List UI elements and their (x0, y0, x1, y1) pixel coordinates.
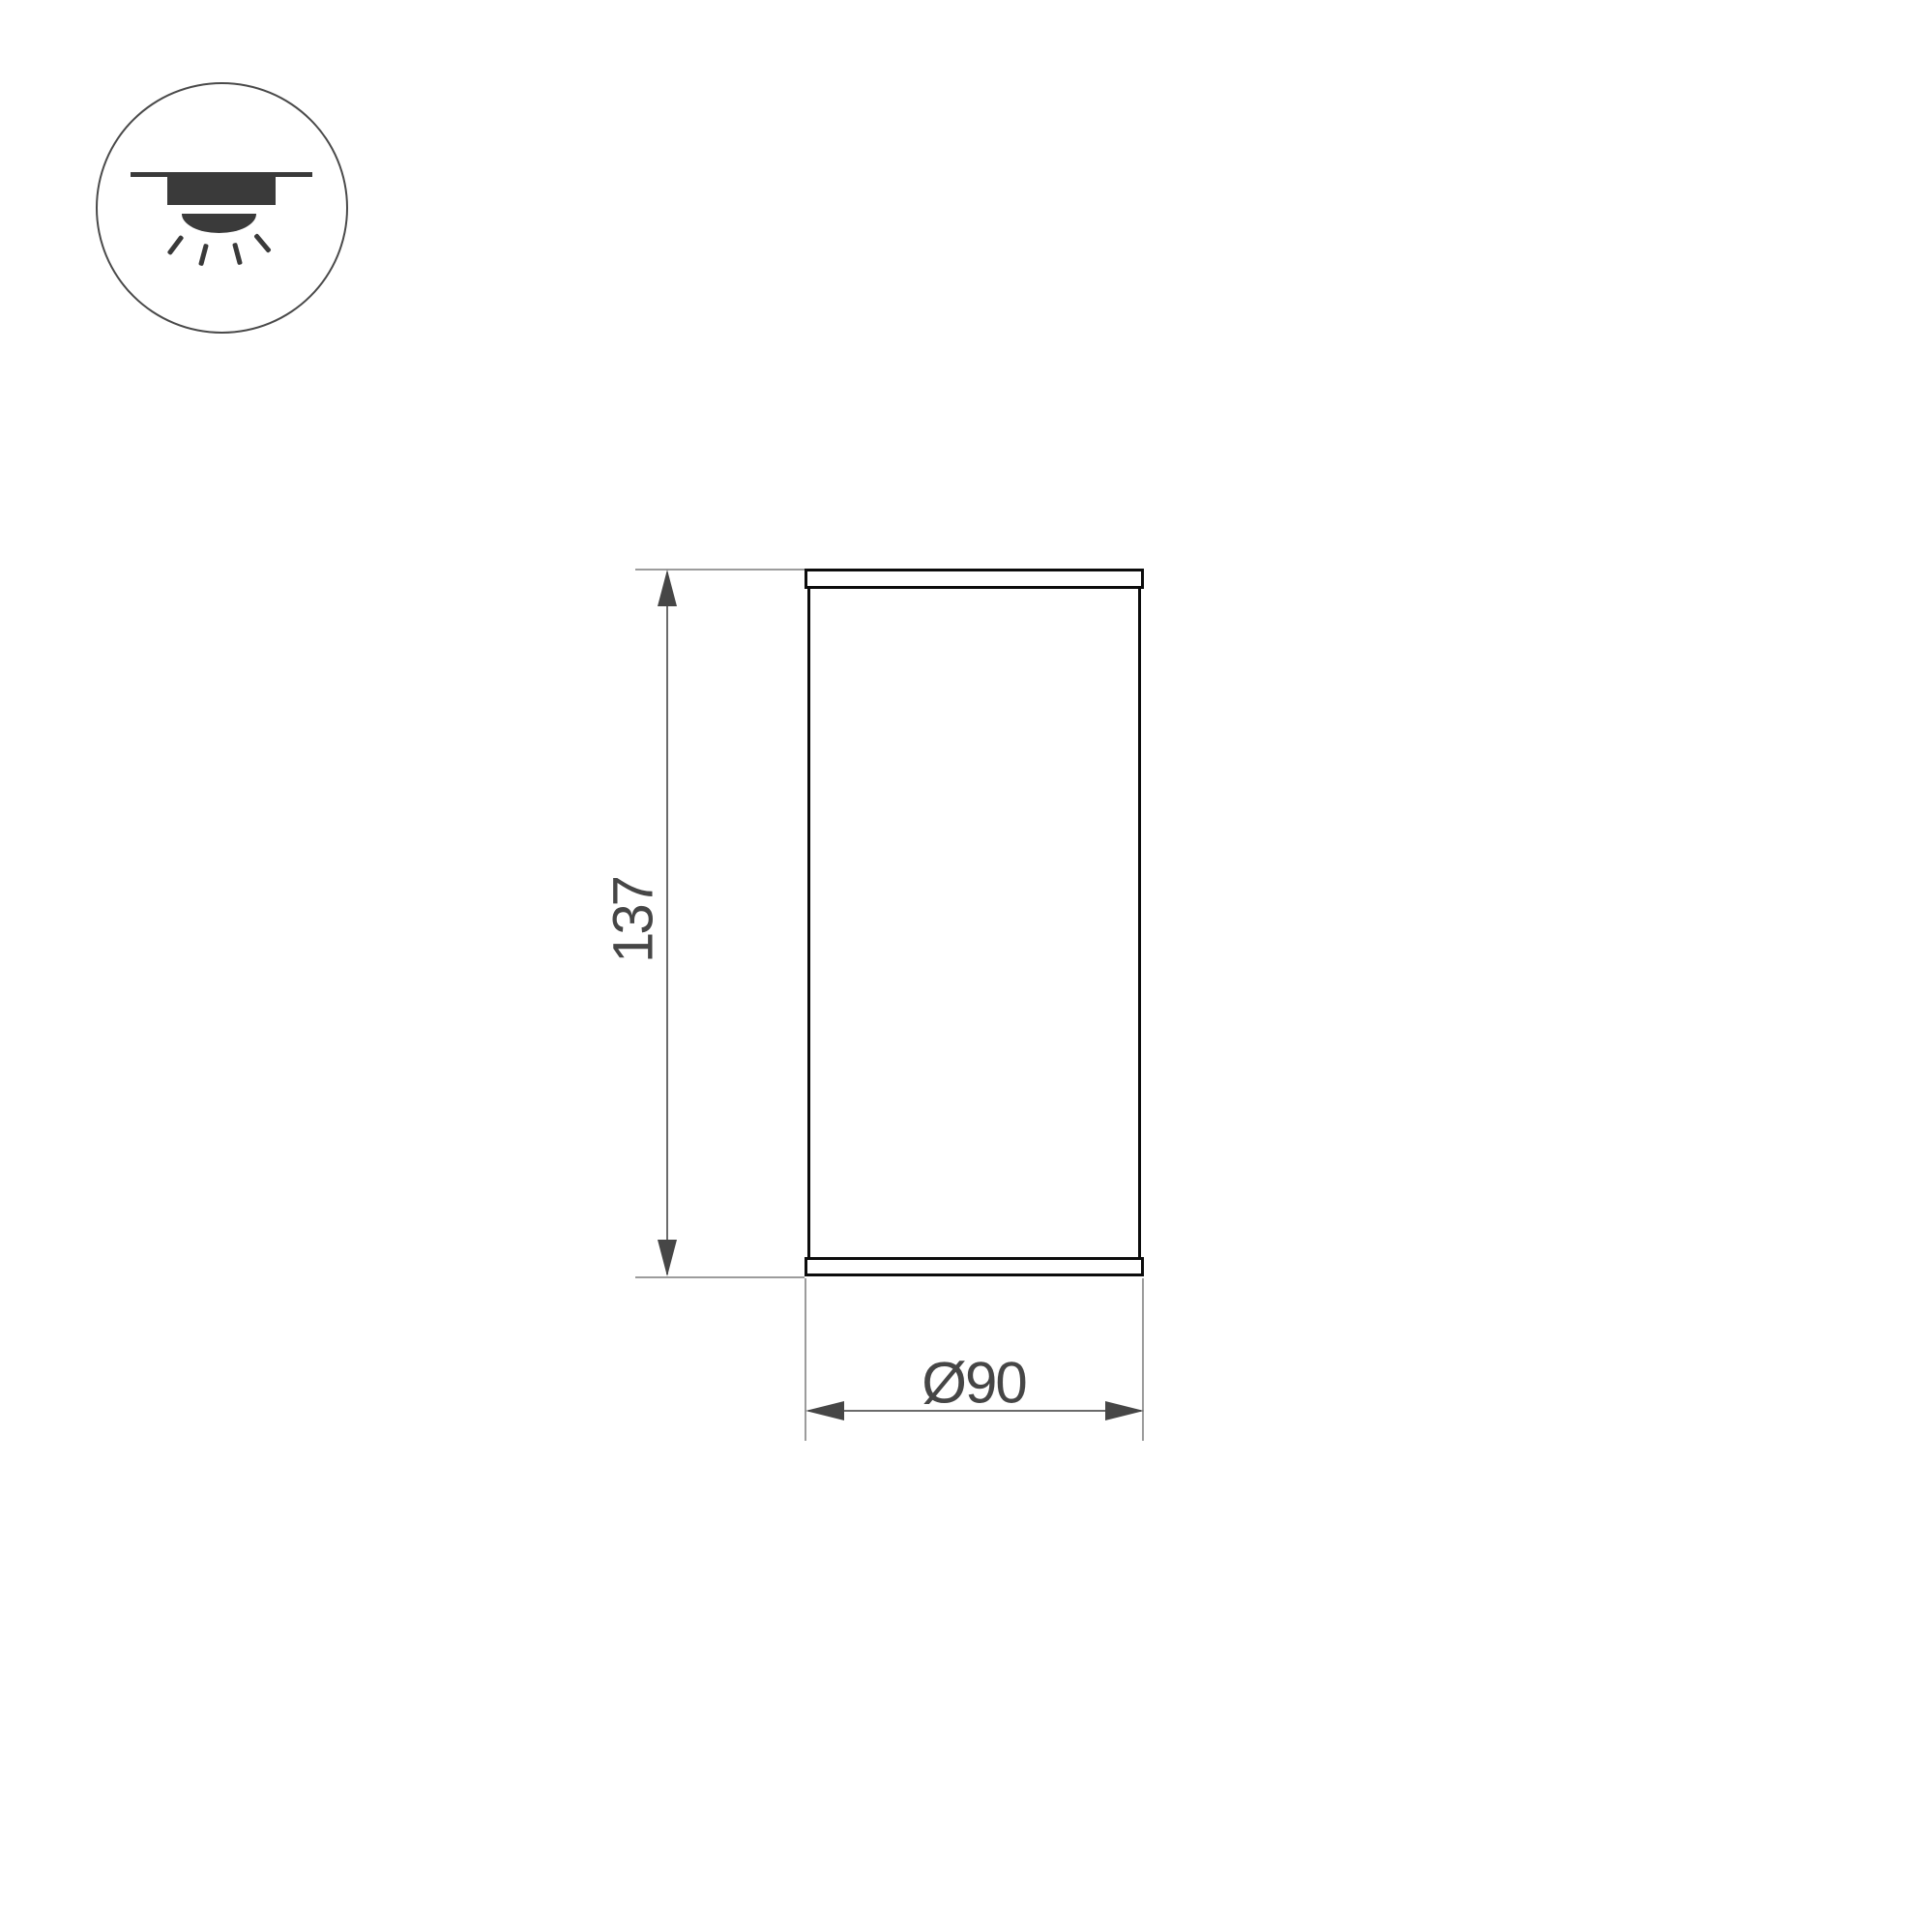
arrowhead-up-icon (658, 570, 677, 606)
arrowhead-down-icon (658, 1240, 677, 1276)
technical-drawing-canvas: 137 Ø90 (0, 0, 1932, 1932)
fixture-housing-icon (167, 175, 276, 205)
lamp-bottom-flange (805, 1257, 1144, 1276)
height-dimension-label: 137 (601, 878, 666, 963)
lamp-body (807, 589, 1141, 1257)
arrowhead-right-icon (1105, 1401, 1144, 1420)
surface-mount-downlight-icon (96, 82, 348, 334)
lamp-top-flange (805, 569, 1144, 589)
arrowhead-left-icon (805, 1401, 844, 1420)
extension-line-bottom (635, 1276, 805, 1278)
diameter-dimension-label: Ø90 (922, 1350, 1025, 1417)
height-dimension-line (666, 572, 668, 1274)
